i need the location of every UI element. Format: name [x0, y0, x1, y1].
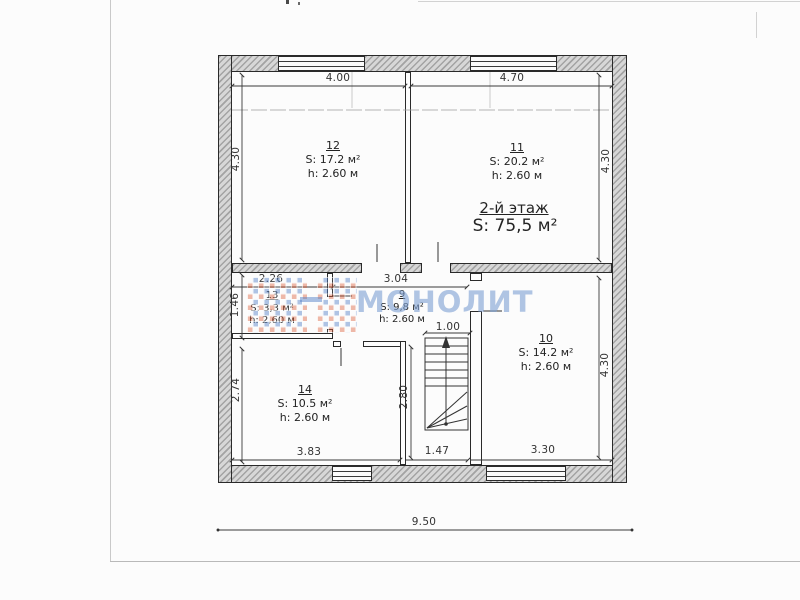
- dim-top-right: 4.70: [482, 72, 542, 84]
- monolit-watermark-text: МОНОЛИТ: [356, 285, 534, 319]
- room10-label: 10 S: 14.2 м² h: 2.60 м: [496, 332, 596, 373]
- room11-height: h: 2.60 м: [492, 169, 542, 182]
- dim-left-upper: 4.30: [230, 137, 242, 181]
- dim-right-lower: 4.30: [599, 343, 611, 387]
- room12-number: 12: [326, 139, 340, 152]
- room11-number: 11: [510, 141, 524, 154]
- monolit-logo-icon: [247, 277, 307, 333]
- dim-corridor-depth: 2.80: [398, 375, 410, 419]
- room12-area: S: 17.2 м²: [306, 153, 361, 166]
- room10-height: h: 2.60 м: [521, 360, 571, 373]
- room14-number: 14: [298, 383, 312, 396]
- room11-area: S: 20.2 м²: [490, 155, 545, 168]
- room10-number: 10: [539, 332, 553, 345]
- dim-right-upper: 4.30: [600, 139, 612, 183]
- monolit-logo-icon: [317, 277, 357, 333]
- dim-room14-width: 3.83: [279, 446, 339, 458]
- floor-title: 2-й этаж: [452, 199, 576, 217]
- room11-label: 11 S: 20.2 м² h: 2.60 м: [467, 141, 567, 182]
- room14-label: 14 S: 10.5 м² h: 2.60 м: [255, 383, 355, 424]
- room12-label: 12 S: 17.2 м² h: 2.60 м: [283, 139, 383, 180]
- dim-corridor-width: 1.47: [407, 445, 467, 457]
- room14-area: S: 10.5 м²: [278, 397, 333, 410]
- floor-total-area: S: 75,5 м²: [450, 216, 580, 236]
- dim-room10-width: 3.30: [513, 444, 573, 456]
- room10-area: S: 14.2 м²: [519, 346, 574, 359]
- monolit-logo-bar: [300, 297, 322, 302]
- room14-height: h: 2.60 м: [280, 411, 330, 424]
- stair-direction-arrow: [442, 336, 450, 426]
- dim-top-left: 4.00: [308, 72, 368, 84]
- dim-total-width: 9.50: [394, 516, 454, 528]
- roof-projection-lines: [232, 72, 612, 110]
- room12-height: h: 2.60 м: [308, 167, 358, 180]
- dim-hall-width: 3.04: [366, 273, 426, 285]
- scanned-floor-plan-page: 4.00 4.70 4.30 4.30 2.26 3.04 1.46 1.00 …: [0, 0, 800, 600]
- dim-room14-depth: 2.74: [230, 368, 242, 412]
